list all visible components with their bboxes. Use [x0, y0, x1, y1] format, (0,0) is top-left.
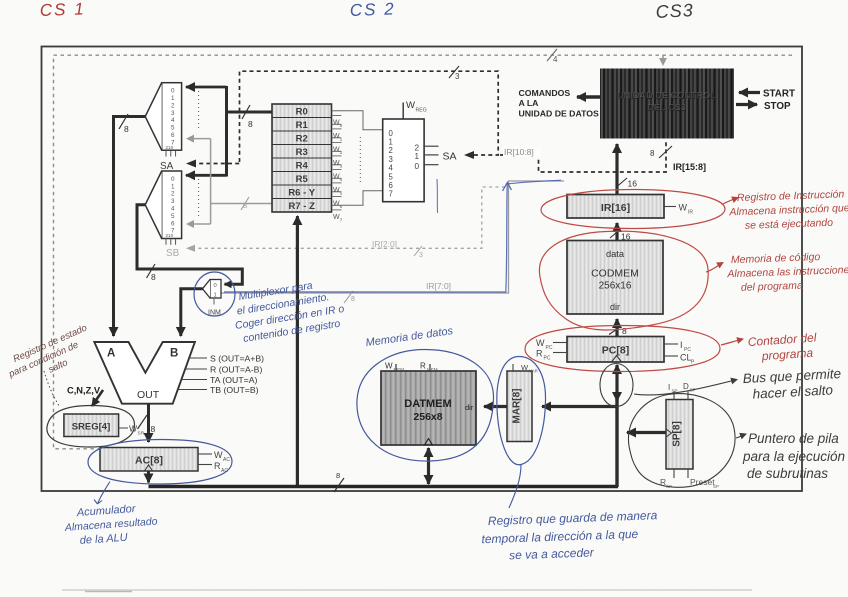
svg-text:R: R	[420, 362, 426, 371]
svg-text:B: B	[170, 348, 178, 360]
svg-text:1: 1	[214, 293, 217, 299]
svg-text:R1: R1	[296, 120, 309, 131]
svg-text:SP[8]: SP[8]	[672, 421, 683, 447]
svg-text:R3: R3	[296, 147, 308, 158]
svg-text:MAR[8]: MAR[8]	[512, 389, 523, 424]
svg-text:W: W	[536, 338, 545, 348]
svg-text:SP: SP	[713, 484, 719, 489]
svg-text:3: 3	[419, 252, 423, 259]
svg-text:R0: R0	[296, 107, 308, 118]
svg-text:8: 8	[243, 201, 247, 210]
svg-text:8: 8	[151, 424, 156, 434]
svg-text:8: 8	[650, 149, 655, 158]
svg-text:CS 2: CS 2	[349, 0, 395, 20]
svg-text:MEM: MEM	[394, 367, 405, 372]
svg-text:6: 6	[171, 220, 175, 227]
svg-text:SREG[4]: SREG[4]	[72, 422, 111, 433]
svg-text:3: 3	[455, 72, 460, 81]
svg-text:256x8: 256x8	[413, 411, 442, 423]
svg-text:W: W	[679, 203, 688, 213]
svg-text:AC: AC	[223, 457, 230, 463]
svg-text:5: 5	[171, 213, 175, 220]
svg-text:COMANDOS: COMANDOS	[519, 88, 571, 98]
svg-text:UNIDAD DE CONTROL: UNIDAD DE CONTROL	[617, 91, 716, 101]
svg-text:0: 0	[171, 176, 175, 183]
svg-text:5: 5	[171, 125, 175, 132]
svg-text:R7 - Z: R7 - Z	[289, 201, 316, 212]
svg-text:2: 2	[171, 191, 175, 198]
svg-text:UNIDAD DE DATOS: UNIDAD DE DATOS	[519, 109, 599, 119]
svg-text:START: START	[763, 89, 795, 100]
svg-text:1: 1	[415, 152, 420, 161]
svg-text:A LA: A LA	[519, 98, 540, 108]
svg-text:3: 3	[171, 198, 175, 205]
svg-text:3: 3	[171, 110, 175, 117]
svg-text:6: 6	[389, 181, 393, 190]
svg-text:IR[7:0]: IR[7:0]	[426, 281, 451, 291]
svg-text:210: 210	[166, 233, 174, 238]
svg-text:210: 210	[166, 145, 174, 150]
svg-text:8: 8	[124, 124, 129, 134]
svg-text:4: 4	[171, 117, 175, 124]
svg-text:R4: R4	[296, 161, 309, 172]
svg-text:IR: IR	[688, 210, 693, 216]
svg-text:W: W	[214, 450, 223, 460]
svg-text:Puntero de pila: Puntero de pila	[748, 431, 839, 446]
svg-text:R: R	[536, 349, 543, 359]
svg-text:SB: SB	[166, 248, 180, 259]
svg-text:8: 8	[336, 471, 340, 480]
svg-text:8: 8	[351, 296, 355, 303]
svg-text:DEL CS3: DEL CS3	[647, 103, 686, 113]
svg-text:CS 1: CS 1	[39, 0, 85, 20]
svg-text:4: 4	[389, 164, 394, 173]
svg-text:STOP: STOP	[764, 101, 791, 112]
svg-text:8: 8	[151, 272, 156, 282]
svg-text:OUT: OUT	[137, 389, 160, 401]
svg-text:W: W	[385, 362, 393, 371]
svg-text:C,N,Z,V: C,N,Z,V	[67, 386, 101, 396]
svg-text:2: 2	[389, 146, 393, 155]
svg-text:16: 16	[628, 179, 638, 189]
svg-text:MAR: MAR	[529, 369, 538, 374]
svg-text:CODMEM: CODMEM	[591, 268, 639, 280]
svg-text:8: 8	[622, 326, 627, 336]
svg-text:del programa: del programa	[741, 280, 803, 294]
svg-text:dir: dir	[465, 403, 474, 412]
svg-text:IR[16]: IR[16]	[601, 202, 630, 214]
svg-text:DATMEM: DATMEM	[404, 398, 451, 410]
svg-text:0: 0	[415, 162, 420, 171]
svg-text:I: I	[668, 383, 670, 392]
svg-text:R: R	[214, 461, 221, 471]
svg-text:IR[10:8]: IR[10:8]	[504, 147, 534, 157]
svg-text:1: 1	[171, 95, 175, 102]
svg-text:D: D	[683, 382, 689, 391]
svg-text:0: 0	[171, 88, 175, 95]
svg-text:1: 1	[171, 183, 175, 190]
svg-text:0: 0	[214, 283, 217, 289]
svg-text:0: 0	[389, 129, 394, 138]
svg-text:R6 - Y: R6 - Y	[288, 188, 315, 199]
svg-text:se va a acceder: se va a acceder	[509, 545, 595, 562]
svg-text:REG: REG	[416, 108, 427, 114]
svg-text:PC: PC	[546, 345, 553, 351]
svg-text:R2: R2	[296, 134, 308, 145]
svg-text:I: I	[680, 340, 683, 350]
svg-text:S (OUT=A+B): S (OUT=A+B)	[210, 354, 264, 364]
svg-text:PC[8]: PC[8]	[602, 345, 629, 357]
svg-text:256x16: 256x16	[599, 281, 632, 292]
svg-text:TB (OUT=B): TB (OUT=B)	[210, 385, 259, 395]
svg-text:R (OUT=A-B): R (OUT=A-B)	[210, 365, 262, 375]
svg-text:4: 4	[171, 206, 175, 213]
svg-text:8: 8	[248, 119, 253, 129]
svg-text:IR[2:0]: IR[2:0]	[372, 239, 397, 249]
svg-text:2: 2	[415, 144, 420, 153]
svg-text:TA (OUT=A): TA (OUT=A)	[210, 375, 257, 385]
svg-text:IR[15:8]: IR[15:8]	[673, 162, 706, 172]
svg-text:2: 2	[171, 102, 175, 109]
svg-text:7: 7	[389, 190, 393, 199]
svg-text:PC: PC	[544, 356, 551, 362]
svg-text:A: A	[107, 348, 115, 360]
svg-text:3: 3	[389, 155, 393, 164]
svg-text:dir: dir	[610, 302, 620, 312]
svg-text:1: 1	[389, 138, 393, 147]
svg-text:CL: CL	[680, 353, 692, 363]
svg-text:MEM: MEM	[427, 367, 438, 372]
svg-text:data: data	[606, 249, 625, 259]
svg-text:CS3: CS3	[655, 0, 694, 22]
svg-text:4: 4	[553, 55, 558, 64]
svg-text:SA: SA	[443, 151, 457, 163]
svg-text:R5: R5	[296, 174, 309, 185]
svg-text:SR: SR	[138, 431, 145, 437]
svg-text:W: W	[406, 100, 415, 111]
svg-text:de subrutinas: de subrutinas	[747, 466, 828, 481]
svg-text:6: 6	[171, 132, 175, 139]
svg-text:5: 5	[389, 172, 394, 181]
svg-text:para la ejecución: para la ejecución	[742, 449, 845, 464]
